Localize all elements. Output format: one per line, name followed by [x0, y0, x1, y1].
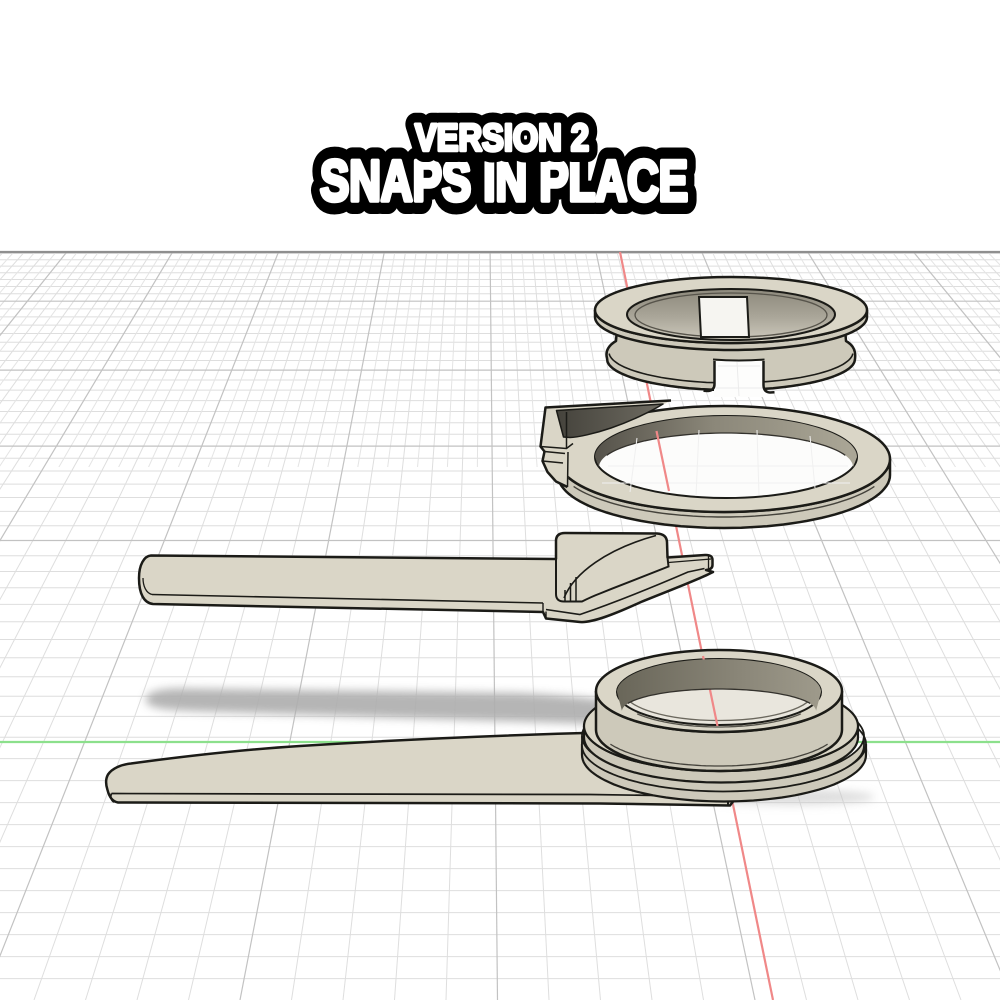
svg-text:VERSION 2: VERSION 2: [415, 118, 589, 160]
